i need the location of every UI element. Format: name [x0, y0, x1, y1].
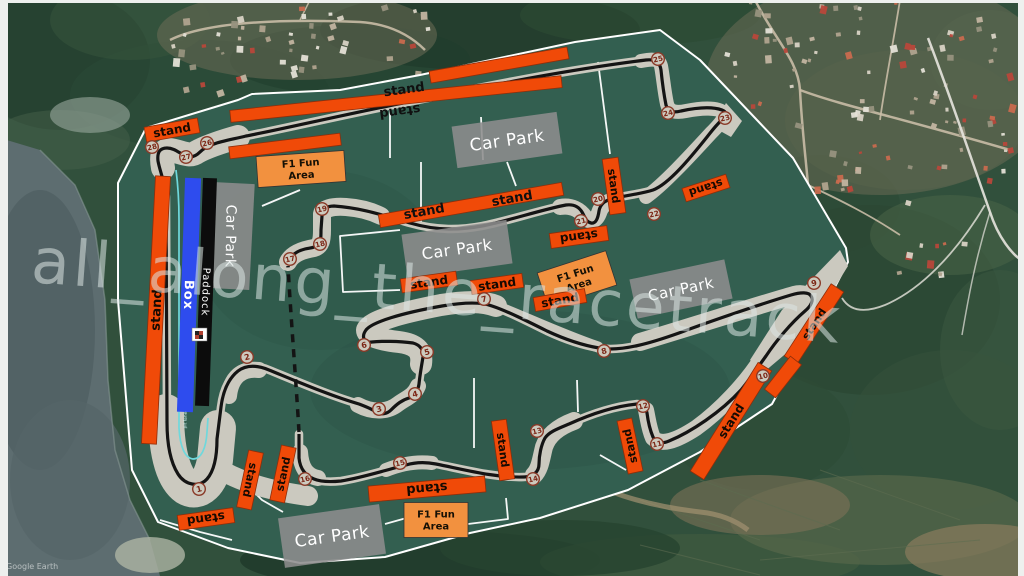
- house: [976, 17, 983, 23]
- f1-fun-area-label: F1 Fun: [417, 510, 455, 521]
- house: [945, 108, 948, 112]
- house: [298, 66, 304, 73]
- house: [927, 260, 935, 269]
- house: [909, 45, 915, 50]
- f1-fun-area-label: Area: [288, 170, 315, 183]
- house: [189, 64, 196, 70]
- house: [961, 241, 967, 246]
- house: [178, 49, 185, 57]
- house: [764, 37, 769, 44]
- house: [309, 23, 314, 29]
- house: [1004, 150, 1007, 153]
- house: [795, 42, 800, 47]
- house: [765, 28, 772, 33]
- house: [311, 33, 316, 39]
- house: [202, 44, 207, 48]
- house: [935, 244, 939, 249]
- f1-fun-area: F1 FunArea: [256, 150, 346, 187]
- house: [200, 82, 205, 88]
- house: [426, 27, 431, 31]
- house: [987, 178, 993, 185]
- house: [790, 85, 794, 89]
- satellite-map-view: Car ParkCar ParkCar ParkCar ParkCar Park…: [0, 0, 1024, 576]
- house: [919, 243, 923, 248]
- house: [231, 21, 238, 29]
- service-road: [577, 380, 578, 412]
- house: [814, 51, 818, 55]
- f1-fun-area: F1 FunArea: [404, 503, 468, 538]
- start-finish-flag-icon: [192, 328, 207, 341]
- house: [867, 70, 870, 74]
- house: [851, 112, 858, 118]
- house: [751, 104, 756, 109]
- house: [853, 5, 858, 10]
- pit-lane-label: pit lane: [182, 411, 189, 428]
- f1-fun-area-label: Area: [423, 522, 449, 533]
- house: [814, 186, 821, 194]
- house: [833, 6, 838, 12]
- flag-check: [199, 331, 203, 335]
- house: [183, 18, 191, 26]
- house: [387, 56, 394, 61]
- house: [173, 58, 181, 67]
- house: [280, 60, 286, 65]
- house: [842, 179, 849, 186]
- house: [773, 39, 777, 42]
- house: [829, 150, 837, 158]
- house: [855, 167, 861, 174]
- house: [857, 30, 861, 35]
- frame-left: [0, 0, 8, 576]
- beach-sand: [115, 537, 185, 573]
- house: [869, 106, 875, 112]
- vegetation-patch: [670, 475, 850, 535]
- house: [216, 32, 220, 37]
- house: [421, 12, 428, 20]
- house: [899, 61, 907, 69]
- house: [860, 99, 865, 103]
- house: [312, 65, 317, 69]
- house: [289, 32, 293, 36]
- house: [822, 182, 829, 191]
- flag-check: [195, 335, 199, 339]
- house: [734, 75, 737, 78]
- imagery-attribution: Google Earth: [6, 562, 58, 571]
- house: [836, 32, 841, 37]
- house: [250, 48, 255, 54]
- house: [938, 272, 942, 276]
- house: [910, 110, 914, 114]
- house: [301, 55, 309, 62]
- house: [857, 114, 864, 122]
- house: [863, 107, 869, 113]
- frame-top: [0, 0, 1024, 3]
- house: [259, 25, 266, 32]
- house: [1001, 169, 1005, 174]
- house: [289, 49, 293, 53]
- house: [299, 6, 305, 11]
- house: [328, 12, 332, 15]
- house: [947, 55, 954, 61]
- house: [950, 34, 954, 37]
- house: [1003, 142, 1007, 146]
- house: [755, 9, 763, 17]
- house: [241, 26, 245, 30]
- house: [906, 252, 913, 259]
- flag-check: [199, 335, 203, 339]
- flag-check: [195, 331, 199, 335]
- house: [983, 166, 987, 171]
- house: [941, 165, 947, 170]
- house: [859, 17, 863, 21]
- house: [1001, 133, 1005, 136]
- house: [236, 46, 243, 53]
- house: [238, 37, 241, 41]
- house: [301, 14, 306, 19]
- house: [764, 13, 771, 18]
- house: [962, 118, 966, 122]
- house: [216, 47, 220, 51]
- shore-rock: [50, 97, 130, 133]
- house: [987, 120, 993, 127]
- frame-right: [1018, 0, 1024, 576]
- house: [765, 55, 772, 64]
